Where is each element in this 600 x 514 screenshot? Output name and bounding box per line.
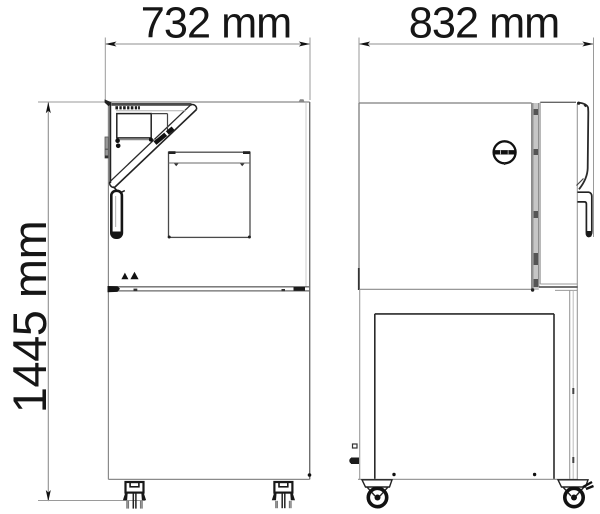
svg-text:832 mm: 832 mm xyxy=(409,0,559,47)
svg-text:732 mm: 732 mm xyxy=(141,0,291,47)
